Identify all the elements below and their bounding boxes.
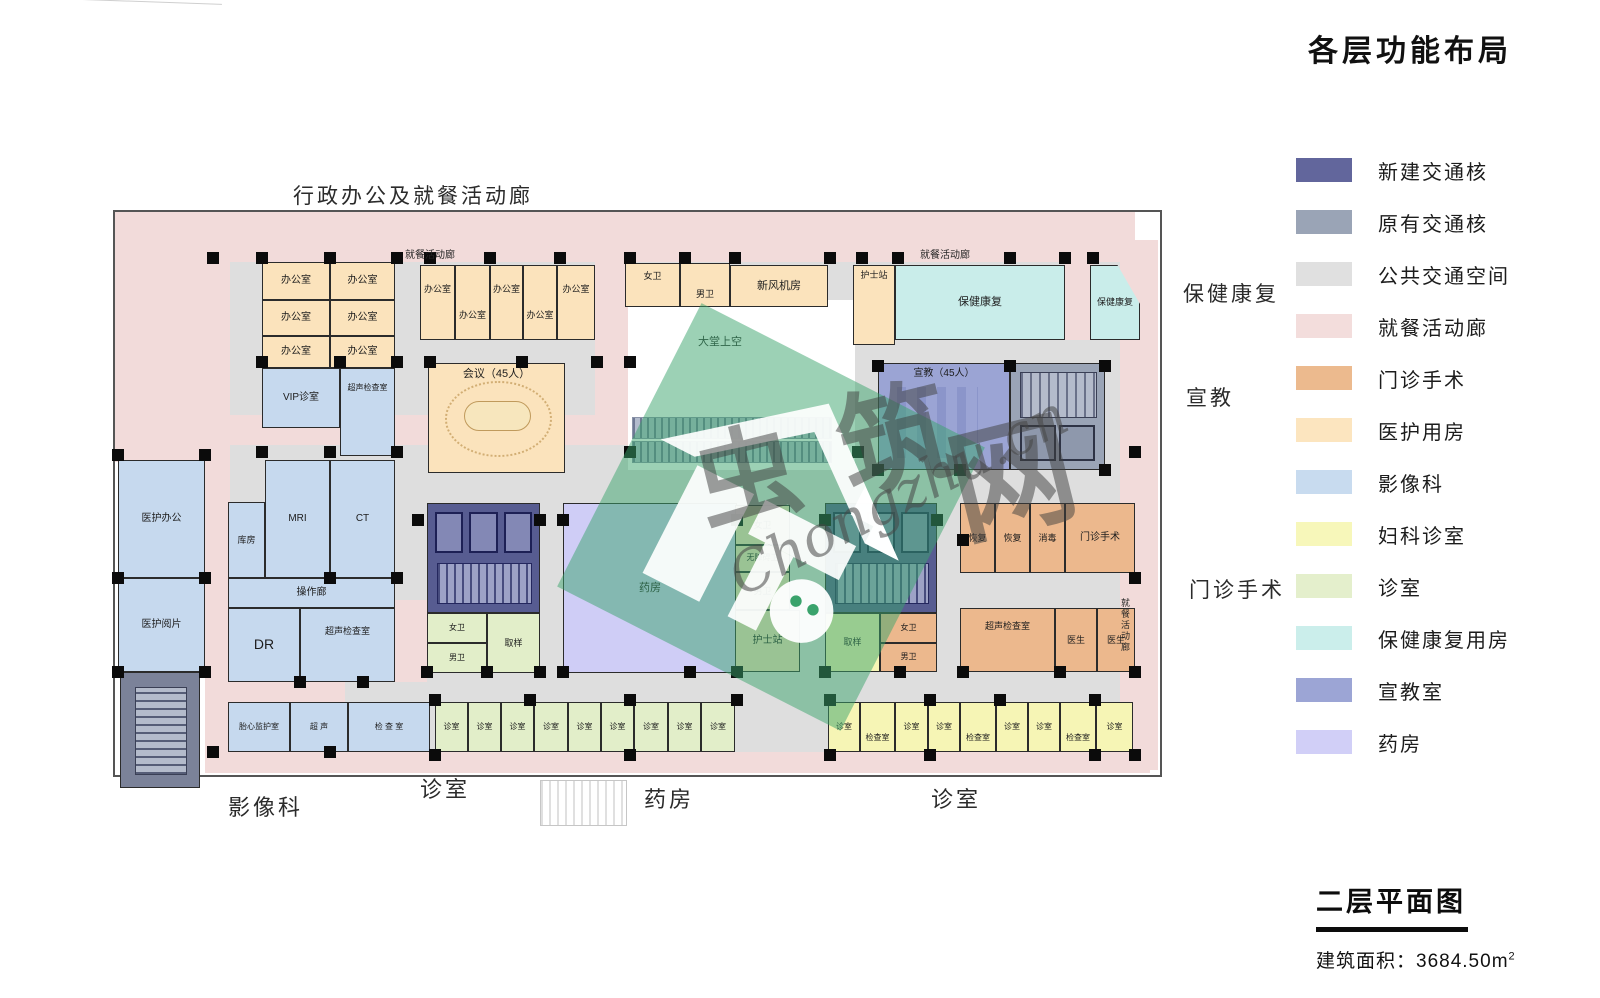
room-男卫: 男卫 — [880, 643, 937, 672]
room-门诊手术: 门诊手术 — [1065, 503, 1135, 573]
elevator-cell — [833, 512, 861, 553]
column — [421, 666, 433, 678]
escalator — [632, 441, 832, 463]
room-女卫: 女卫 — [427, 613, 487, 643]
room-label: 取样 — [843, 637, 861, 647]
room-label: 诊室 — [936, 723, 952, 732]
room-超 声: 超 声 — [290, 702, 348, 752]
legend-label: 原有交通核 — [1378, 208, 1488, 237]
room-label: DR — [254, 637, 274, 653]
room-label: 诊室 — [543, 723, 559, 732]
legend-swatch — [1296, 522, 1352, 546]
room-label: 医护阅片 — [142, 619, 182, 630]
room-诊室: 诊室 — [468, 702, 501, 752]
room-检查室: 检查室 — [1060, 702, 1096, 752]
column — [391, 252, 403, 264]
room-label: 诊室 — [510, 723, 526, 732]
room-label: 消毒 — [1038, 533, 1056, 543]
room-诊室: 诊室 — [601, 702, 634, 752]
column — [1089, 749, 1101, 761]
column — [591, 356, 603, 368]
legend-item: 妇科诊室 — [1296, 522, 1510, 546]
column — [1099, 360, 1111, 372]
column — [924, 749, 936, 761]
room-恢复: 恢复 — [995, 503, 1030, 573]
room-label: 超声检查室 — [325, 626, 370, 636]
legend: 新建交通核原有交通核公共交通空间就餐活动廊门诊手术医护用房影像科妇科诊室诊室保健… — [1296, 158, 1510, 782]
room-诊室: 诊室 — [895, 702, 928, 752]
room-label: 取样 — [504, 638, 522, 648]
column — [256, 446, 268, 458]
room-胎心监护室: 胎心监护室 — [228, 702, 290, 752]
column — [624, 252, 636, 264]
room-办公室: 办公室 — [523, 265, 557, 340]
column — [391, 572, 403, 584]
column — [357, 676, 369, 688]
area-label: 影像科 — [228, 790, 303, 822]
legend-swatch — [1296, 418, 1352, 442]
column — [624, 356, 636, 368]
column — [924, 694, 936, 706]
elevator-cell — [469, 512, 498, 553]
room-无障碍卫: 无障碍卫 — [735, 545, 790, 572]
legend-item: 原有交通核 — [1296, 210, 1510, 234]
column — [1129, 666, 1141, 678]
legend-swatch — [1296, 470, 1352, 494]
room-core — [120, 672, 200, 788]
room-诊室: 诊室 — [928, 702, 960, 752]
core-stair — [437, 563, 532, 604]
column — [1004, 252, 1016, 264]
room-药房: 药房 — [563, 503, 737, 673]
room-label: 无障碍卫 — [747, 554, 779, 563]
room-label: 会议（45人） — [463, 368, 530, 380]
room-超声检查室: 超声检查室 — [960, 608, 1055, 672]
room-label: 诊室 — [577, 723, 593, 732]
room-label: 检查室 — [1066, 734, 1090, 743]
column — [112, 572, 124, 584]
room-VIP诊室: VIP诊室 — [262, 368, 340, 428]
room-护士站: 护士站 — [735, 610, 800, 672]
column — [334, 356, 346, 368]
column — [557, 666, 569, 678]
legend-swatch — [1296, 210, 1352, 234]
room-label: 诊室 — [836, 723, 852, 732]
room-诊室: 诊室 — [996, 702, 1028, 752]
area-label: 门诊手术 — [1189, 574, 1285, 604]
room-label: MRI — [288, 513, 306, 524]
legend-swatch — [1296, 678, 1352, 702]
elevator-cell — [504, 512, 533, 553]
column — [624, 446, 636, 458]
room-label: 恢复 — [1003, 533, 1021, 543]
floor-name: 二层平面图 — [1316, 880, 1516, 919]
room-女卫: 女卫 — [880, 613, 937, 643]
room-label: 诊室 — [477, 723, 493, 732]
room-办公室: 办公室 — [557, 265, 595, 340]
column — [424, 356, 436, 368]
legend-label: 宣教室 — [1378, 676, 1444, 705]
column — [872, 360, 884, 372]
room-DR: DR — [228, 608, 300, 682]
room-label: 男卫 — [449, 654, 465, 663]
column — [429, 694, 441, 706]
room-label: 办公室 — [562, 284, 589, 294]
column — [624, 749, 636, 761]
zone-dining — [1065, 262, 1093, 340]
room-label: 诊室 — [904, 723, 920, 732]
corridor-label: 就餐活动廊 — [405, 246, 455, 261]
legend-item: 新建交通核 — [1296, 158, 1510, 182]
legend-swatch — [1296, 158, 1352, 182]
room-办公室: 办公室 — [490, 265, 523, 340]
room-男卫: 男卫 — [427, 643, 487, 673]
column — [294, 676, 306, 688]
column — [199, 449, 211, 461]
room-女卫: 女卫 — [625, 263, 680, 307]
room-诊室: 诊室 — [828, 702, 860, 752]
room-label: 门诊手术 — [1080, 532, 1120, 543]
stair-flight — [1020, 372, 1096, 418]
area-label: 宣教 — [1186, 382, 1234, 412]
corridor-label: 就餐活动廊 — [920, 246, 970, 261]
room-label: 药房 — [639, 582, 661, 594]
column — [207, 252, 219, 264]
room-label: 办公室 — [348, 275, 378, 286]
room-办公室: 办公室 — [262, 262, 330, 300]
column — [112, 449, 124, 461]
title-block: 二层平面图 建筑面积：3684.50m2 — [1316, 880, 1516, 973]
column — [824, 694, 836, 706]
column — [1129, 572, 1141, 584]
room-label: 办公室 — [281, 346, 311, 357]
legend-item: 保健康复用房 — [1296, 626, 1510, 650]
room-诊室: 诊室 — [1028, 702, 1060, 752]
room-男卫: 男卫 — [680, 263, 730, 307]
zone-dining — [205, 752, 1150, 773]
room-诊室: 诊室 — [568, 702, 601, 752]
room-label: 医护办公 — [142, 513, 182, 524]
column — [624, 694, 636, 706]
zone-dining — [115, 262, 205, 462]
column — [534, 666, 546, 678]
legend-item: 影像科 — [1296, 470, 1510, 494]
legend-item: 医护用房 — [1296, 418, 1510, 442]
column — [1059, 252, 1071, 264]
column — [484, 252, 496, 264]
legend-item: 药房 — [1296, 730, 1510, 754]
room-label: 护士站 — [753, 635, 783, 646]
column — [852, 446, 864, 458]
column — [679, 252, 691, 264]
room-label: 诊室 — [610, 723, 626, 732]
room-label: 诊室 — [643, 723, 659, 732]
room-超声检查室: 超声检查室 — [340, 368, 395, 456]
room-办公室: 办公室 — [420, 265, 455, 340]
room-label: 办公室 — [459, 310, 486, 320]
room-办公室: 办公室 — [330, 300, 395, 336]
room-保健康复: 保健康复 — [895, 265, 1065, 340]
room-超声检查室: 超声检查室 — [300, 608, 395, 682]
room-诊室: 诊室 — [701, 702, 735, 752]
room-新风机房: 新风机房 — [730, 265, 828, 307]
exterior-stair — [540, 780, 627, 826]
room-label: 保健康复 — [1097, 297, 1133, 307]
room-label: CT — [356, 513, 369, 524]
room-label: 办公室 — [348, 346, 378, 357]
column — [731, 514, 743, 526]
column — [557, 514, 569, 526]
room-label: 诊室 — [677, 723, 693, 732]
core-stair — [835, 563, 929, 604]
room-label: 超声检查室 — [985, 621, 1030, 631]
room-label: 操作廊 — [297, 587, 327, 598]
room-label: 恢复 — [968, 533, 986, 543]
column — [412, 514, 424, 526]
column — [931, 514, 943, 526]
legend-swatch — [1296, 730, 1352, 754]
room-检查室: 检查室 — [860, 702, 895, 752]
column — [1129, 749, 1141, 761]
room-label: 办公室 — [281, 312, 311, 323]
elevator-cell — [1020, 425, 1055, 461]
column — [481, 666, 493, 678]
room-男卫: 男卫 — [735, 572, 790, 610]
room-label: 男卫 — [901, 653, 917, 662]
legend-label: 就餐活动廊 — [1378, 312, 1488, 341]
legend-item: 公共交通空间 — [1296, 262, 1510, 286]
room-诊室: 诊室 — [668, 702, 701, 752]
area-value: 3684.50m — [1416, 951, 1509, 972]
column — [554, 252, 566, 264]
room-label: 保健康复 — [958, 296, 1002, 308]
column — [524, 694, 536, 706]
column — [892, 252, 904, 264]
room-label: 女卫 — [643, 271, 661, 281]
room-label: 诊室 — [1036, 723, 1052, 732]
elevator-cells — [833, 512, 930, 553]
column — [994, 694, 1006, 706]
column — [516, 356, 528, 368]
room-会议（45人）: 会议（45人） — [428, 363, 565, 473]
corridor-label: 就餐活动廊 — [1119, 598, 1132, 653]
legend-label: 诊室 — [1378, 572, 1422, 601]
legend-item: 就餐活动廊 — [1296, 314, 1510, 338]
escalator — [632, 417, 832, 439]
room-label: 诊室 — [710, 723, 726, 732]
legend-swatch — [1296, 574, 1352, 598]
legend-label: 新建交通核 — [1378, 156, 1488, 185]
area-label: 诊室 — [931, 782, 981, 814]
lecture-seats — [897, 387, 978, 458]
legend-swatch — [1296, 366, 1352, 390]
room-label: 胎心监护室 — [239, 723, 279, 732]
room-label: 宣教（45人） — [913, 368, 974, 379]
area-label: 诊室 — [420, 772, 470, 804]
room-检 查 室: 检 查 室 — [348, 702, 430, 752]
area-sup: 2 — [1509, 951, 1516, 963]
elevator-cell — [867, 512, 895, 553]
column — [954, 464, 966, 476]
legend-item: 宣教室 — [1296, 678, 1510, 702]
room-label: 办公室 — [424, 284, 451, 294]
room-取样: 取样 — [487, 613, 540, 673]
legend-swatch — [1296, 262, 1352, 286]
column — [819, 666, 831, 678]
column — [824, 749, 836, 761]
elevator-cell — [435, 512, 464, 553]
room-MRI: MRI — [265, 460, 330, 578]
room-label: 男卫 — [696, 289, 714, 299]
elevator-cell — [901, 512, 929, 553]
legend-label: 门诊手术 — [1378, 364, 1466, 393]
room-诊室: 诊室 — [1096, 702, 1133, 752]
zone-dining — [595, 262, 628, 415]
room-label: 诊室 — [444, 723, 460, 732]
room-core — [825, 503, 937, 613]
column — [112, 666, 124, 678]
column — [819, 514, 831, 526]
column — [324, 572, 336, 584]
column — [1054, 666, 1066, 678]
legend-item: 诊室 — [1296, 574, 1510, 598]
column — [957, 666, 969, 678]
legend-swatch — [1296, 314, 1352, 338]
column — [824, 252, 836, 264]
legend-label: 影像科 — [1378, 468, 1444, 497]
column — [324, 746, 336, 758]
area-label: 药房 — [644, 782, 694, 814]
room-检查室: 检查室 — [960, 702, 996, 752]
room-办公室: 办公室 — [330, 262, 395, 300]
column — [729, 252, 741, 264]
column — [1129, 446, 1141, 458]
column — [1004, 360, 1016, 372]
room-label: 男卫 — [753, 586, 771, 596]
column — [534, 514, 546, 526]
room-label: VIP诊室 — [283, 392, 319, 403]
legend-label: 公共交通空间 — [1378, 260, 1510, 289]
legend-label: 医护用房 — [1378, 416, 1466, 445]
room-label: 办公室 — [493, 284, 520, 294]
room-label: 检查室 — [866, 734, 890, 743]
column — [731, 666, 743, 678]
room-办公室: 办公室 — [262, 300, 330, 336]
room-label: 办公室 — [526, 310, 553, 320]
column — [391, 356, 403, 368]
room-宣教（45人）: 宣教（45人） — [878, 363, 1010, 470]
column — [199, 572, 211, 584]
room-诊室: 诊室 — [534, 702, 568, 752]
room-label: 库房 — [237, 535, 255, 545]
room-core — [1010, 363, 1105, 470]
column — [391, 446, 403, 458]
room-诊室: 诊室 — [435, 702, 468, 752]
room-消毒: 消毒 — [1030, 503, 1065, 573]
column — [324, 252, 336, 264]
column — [731, 694, 743, 706]
area-prefix: 建筑面积： — [1316, 951, 1416, 972]
room-诊室: 诊室 — [501, 702, 534, 752]
column — [872, 464, 884, 476]
area-label: 保健康复 — [1183, 278, 1279, 308]
column — [256, 252, 268, 264]
elevator-cell — [1059, 425, 1094, 461]
column — [1099, 464, 1111, 476]
legend-item: 门诊手术 — [1296, 366, 1510, 390]
room-label: 诊室 — [1107, 723, 1123, 732]
room-label: 诊室 — [1004, 723, 1020, 732]
column — [199, 666, 211, 678]
room-label: 女卫 — [753, 520, 771, 530]
room-医护办公: 医护办公 — [118, 460, 205, 578]
room-label: 医生 — [1067, 635, 1085, 645]
room-取样: 取样 — [825, 613, 880, 672]
page-title: 各层功能布局 — [1308, 26, 1512, 70]
room-诊室: 诊室 — [634, 702, 668, 752]
room-操作廊: 操作廊 — [228, 578, 395, 608]
room-医生: 医生 — [1055, 608, 1097, 672]
column — [207, 746, 219, 758]
legend-label: 药房 — [1378, 728, 1422, 757]
corridor-label: 大堂上空 — [698, 333, 742, 349]
column — [856, 252, 868, 264]
room-label: 办公室 — [348, 312, 378, 323]
conference-table — [464, 401, 531, 431]
room-label: 超声检查室 — [348, 384, 388, 393]
atrium-line — [0, 0, 222, 5]
column — [1087, 252, 1099, 264]
room-办公室: 办公室 — [262, 336, 330, 368]
room-办公室: 办公室 — [455, 265, 490, 340]
column — [256, 356, 268, 368]
room-label: 检查室 — [966, 734, 990, 743]
room-库房: 库房 — [228, 502, 265, 578]
room-女卫: 女卫 — [735, 505, 790, 545]
room-label: 女卫 — [901, 624, 917, 633]
column — [684, 666, 696, 678]
title-rule — [1316, 927, 1468, 932]
legend-label: 保健康复用房 — [1378, 624, 1510, 653]
column — [324, 446, 336, 458]
legend-label: 妇科诊室 — [1378, 520, 1466, 549]
column — [429, 749, 441, 761]
area-label: 行政办公及就餐活动廊 — [293, 180, 533, 210]
room-label: 新风机房 — [757, 280, 801, 292]
zone-dining — [205, 262, 230, 682]
room-core — [427, 503, 540, 613]
room-医护阅片: 医护阅片 — [118, 578, 205, 672]
stair-flight — [135, 687, 187, 776]
column — [957, 534, 969, 546]
legend-swatch — [1296, 626, 1352, 650]
room-label: 检 查 室 — [375, 723, 403, 732]
room-label: 女卫 — [449, 624, 465, 633]
column — [1089, 694, 1101, 706]
elevator-cells — [435, 512, 533, 553]
column — [894, 666, 906, 678]
room-CT: CT — [330, 460, 395, 578]
room-label: 超 声 — [310, 723, 328, 732]
room-label: 办公室 — [281, 275, 311, 286]
building-area: 建筑面积：3684.50m2 — [1316, 946, 1516, 973]
room-护士站: 护士站 — [853, 265, 895, 345]
room-label: 护士站 — [860, 270, 887, 280]
